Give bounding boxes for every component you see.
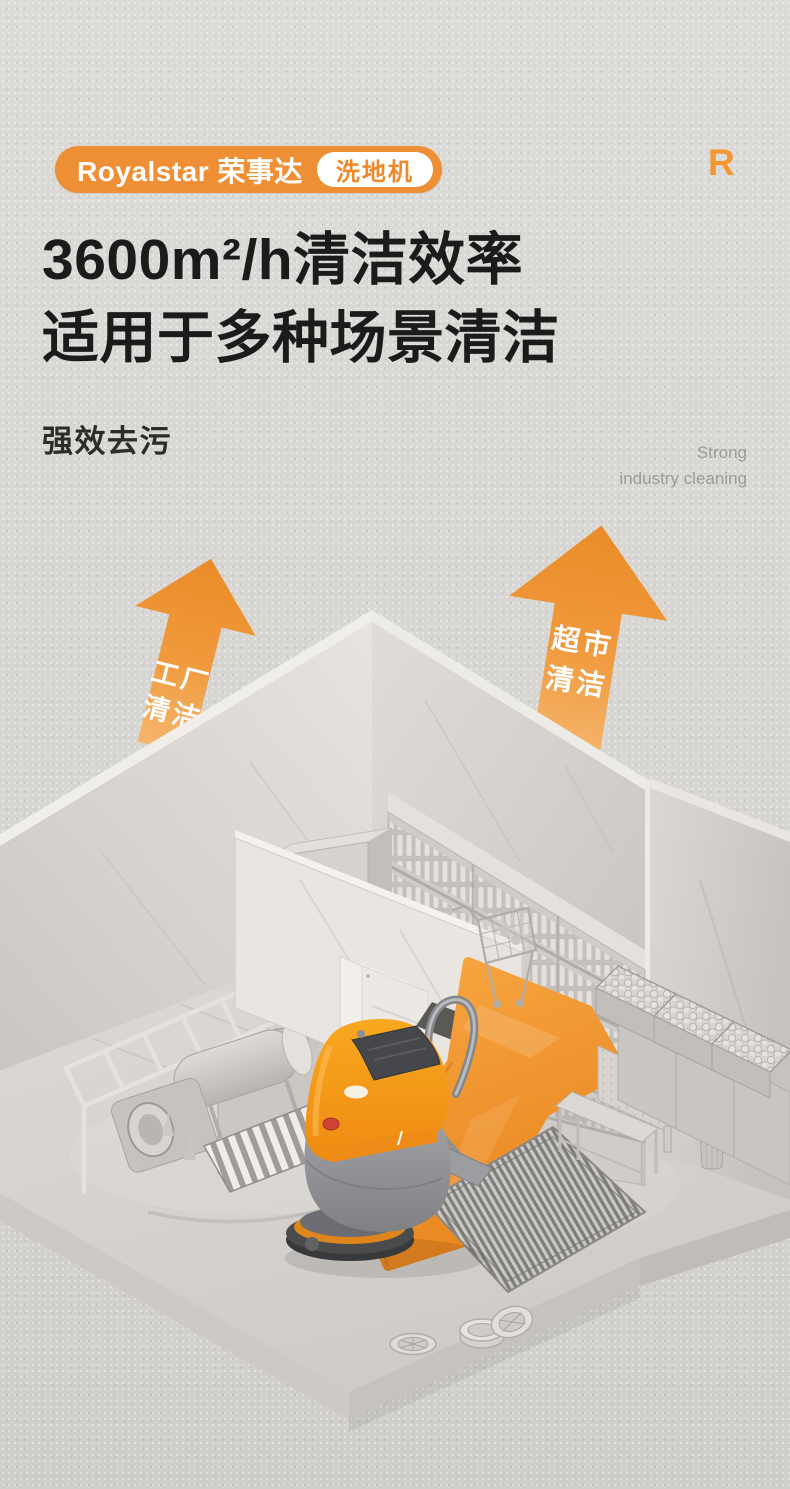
red-button	[323, 1118, 339, 1130]
brand-r-watermark-icon: R	[708, 144, 735, 181]
headline-line2: 适用于多种场景清洁	[42, 300, 762, 378]
tagline-cn: 强效去污	[42, 416, 172, 461]
category-tag: 洗地机	[317, 152, 433, 187]
tagline-en-line2: industry cleaning	[619, 466, 747, 492]
small-post	[664, 1126, 671, 1152]
product-poster: 工厂 清洁 超市 清洁	[0, 0, 790, 1489]
brush-disc	[390, 1334, 436, 1355]
headline-line1: 3600m²/h清洁效率	[42, 222, 762, 300]
brand-badge: Royalstar 荣事达 洗地机	[55, 146, 442, 193]
brand-logo-text: Royalstar 荣事达	[77, 150, 303, 190]
tagline-en: Strong industry cleaning	[619, 440, 747, 493]
hood-logo-oval	[344, 1086, 368, 1099]
tagline-en-line1: Strong	[619, 440, 747, 466]
page-title: 3600m²/h清洁效率 适用于多种场景清洁	[42, 222, 762, 377]
